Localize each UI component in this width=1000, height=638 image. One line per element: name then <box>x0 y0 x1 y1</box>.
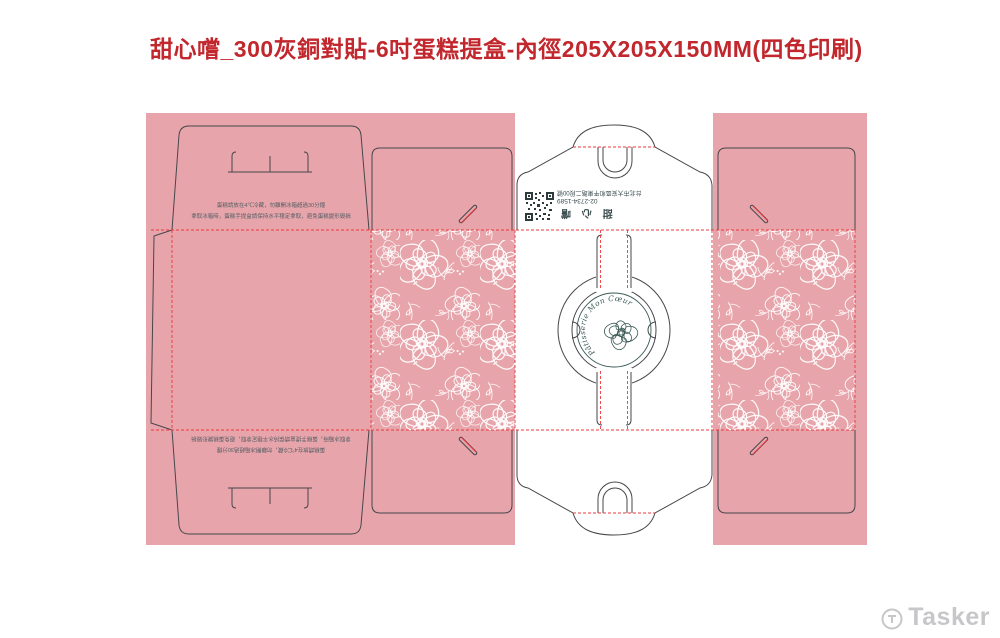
tasker-watermark: Tasker <box>879 603 990 632</box>
care-line-2: 拿取冰箱時，蛋糕手提盒請保持水平穩定拿取，避免蛋糕變形毀損 <box>181 432 361 443</box>
care-instructions-bottom: 蛋糕請放在4℃冷藏，勿離開冰箱超過30分鐘 拿取冰箱時，蛋糕手提盒請保持水平穩定… <box>181 432 361 454</box>
care-line-1: 蛋糕請放在4℃冷藏，勿離開冰箱超過30分鐘 <box>181 201 361 212</box>
qr-code-icon <box>525 192 554 221</box>
brand-phone: 02-2734-1589 <box>557 196 665 205</box>
tasker-logo-icon <box>879 605 905 631</box>
watermark-label: Tasker <box>908 603 990 632</box>
design-canvas: 甜心嚐_300灰銅對貼-6吋蛋糕提盒-內徑205X205X150MM(四色印刷) <box>0 0 1000 638</box>
brand-address: 台北市大安區和平東路二段00號 <box>557 188 665 196</box>
brand-name: 甜 心 嚐 <box>557 205 665 219</box>
care-instructions-top: 蛋糕請放在4℃冷藏，勿離開冰箱超過30分鐘 拿取冰箱時，蛋糕手提盒請保持水平穩定… <box>181 201 361 223</box>
brand-info-block: 甜 心 嚐 02-2734-1589 台北市大安區和平東路二段00號 <box>557 188 665 219</box>
dieline-drawing: Pâtisserie Mon Cœur <box>0 0 1000 638</box>
care-line-1: 蛋糕請放在4℃冷藏，勿離開冰箱超過30分鐘 <box>181 443 361 454</box>
care-line-2: 拿取冰箱時，蛋糕手提盒請保持水平穩定拿取，避免蛋糕變形毀損 <box>181 212 361 223</box>
